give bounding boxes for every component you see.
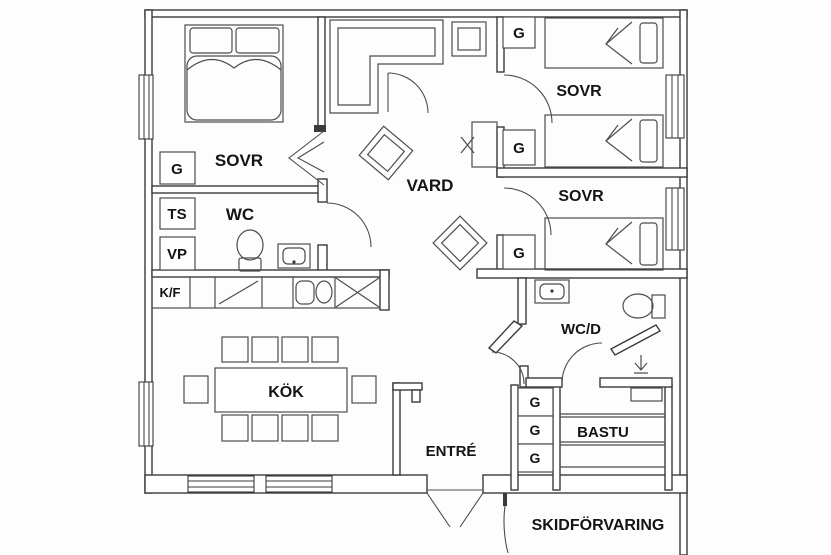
window-bottom-1 <box>188 476 254 492</box>
door-bastu <box>562 343 602 383</box>
floor-plan-svg: SOVR G TS VP K/F WC VARD KÖK ENTRÉ SOVR … <box>0 0 831 555</box>
closet-label-g-hall-3: G <box>530 450 541 466</box>
label-kf: K/F <box>160 285 181 300</box>
window-bottom-2 <box>266 476 332 492</box>
wcd-basin <box>535 280 569 303</box>
folding-door-sovr-left <box>289 131 324 185</box>
door-sovr-right-mid <box>504 188 551 235</box>
door-wc <box>327 203 371 247</box>
kitchen-counter <box>152 277 380 308</box>
window-right-mid <box>666 188 684 250</box>
wcd-toilet <box>623 294 665 318</box>
sauna-heater <box>631 388 662 401</box>
label-vp: VP <box>167 246 187 263</box>
double-bed <box>185 25 283 122</box>
exterior-walls <box>145 10 687 555</box>
tv-bench <box>461 122 497 167</box>
door-wcd <box>492 352 524 384</box>
closet-label-g-left: G <box>171 161 183 178</box>
floor-plan-canvas: SOVR G TS VP K/F WC VARD KÖK ENTRÉ SOVR … <box>0 0 831 555</box>
room-label-vard: VARD <box>407 176 454 195</box>
toilet <box>237 230 263 271</box>
room-label-wcd: WC/D <box>561 321 601 338</box>
single-bed-1 <box>545 18 663 68</box>
kitchen-sink <box>296 281 332 304</box>
wc-fixtures <box>237 230 310 271</box>
single-bed-3 <box>545 218 663 270</box>
room-label-sovr-right-top: SOVR <box>556 83 602 100</box>
armchair-2 <box>433 216 487 270</box>
shower-drain <box>634 355 648 373</box>
room-label-sovr-right-mid: SOVR <box>558 188 604 205</box>
room-label-bastu: BASTU <box>577 424 629 441</box>
dishwasher-mark <box>219 281 258 304</box>
room-label-entre: ENTRÉ <box>426 443 477 460</box>
closet-label-g-hall-2: G <box>530 422 541 438</box>
room-label-wc: WC <box>226 205 254 224</box>
closet-label-g-right-2: G <box>513 140 525 157</box>
room-label-skidforvaring: SKIDFÖRVARING <box>532 515 665 534</box>
room-label-kok: KÖK <box>268 382 304 401</box>
closet-label-g-right-1: G <box>513 25 525 42</box>
room-label-sovr-left: SOVR <box>215 151 263 170</box>
window-left-bottom <box>139 382 153 446</box>
closet-label-g-right-3: G <box>513 245 525 262</box>
label-ts: TS <box>167 206 186 223</box>
room-labels: SOVR G TS VP K/F WC VARD KÖK ENTRÉ SOVR … <box>160 25 665 534</box>
stove-mark <box>336 278 379 307</box>
armchair-1 <box>359 126 413 180</box>
door-vard-top <box>388 73 428 113</box>
ski-storage-boundary <box>503 493 508 553</box>
closet-label-g-hall-1: G <box>530 394 541 410</box>
window-right-top <box>666 75 684 138</box>
cabinet-top <box>452 22 486 56</box>
wash-basin <box>278 244 310 268</box>
window-left-top <box>139 75 153 139</box>
entry-double-door <box>427 490 483 527</box>
single-bed-2 <box>545 115 663 167</box>
